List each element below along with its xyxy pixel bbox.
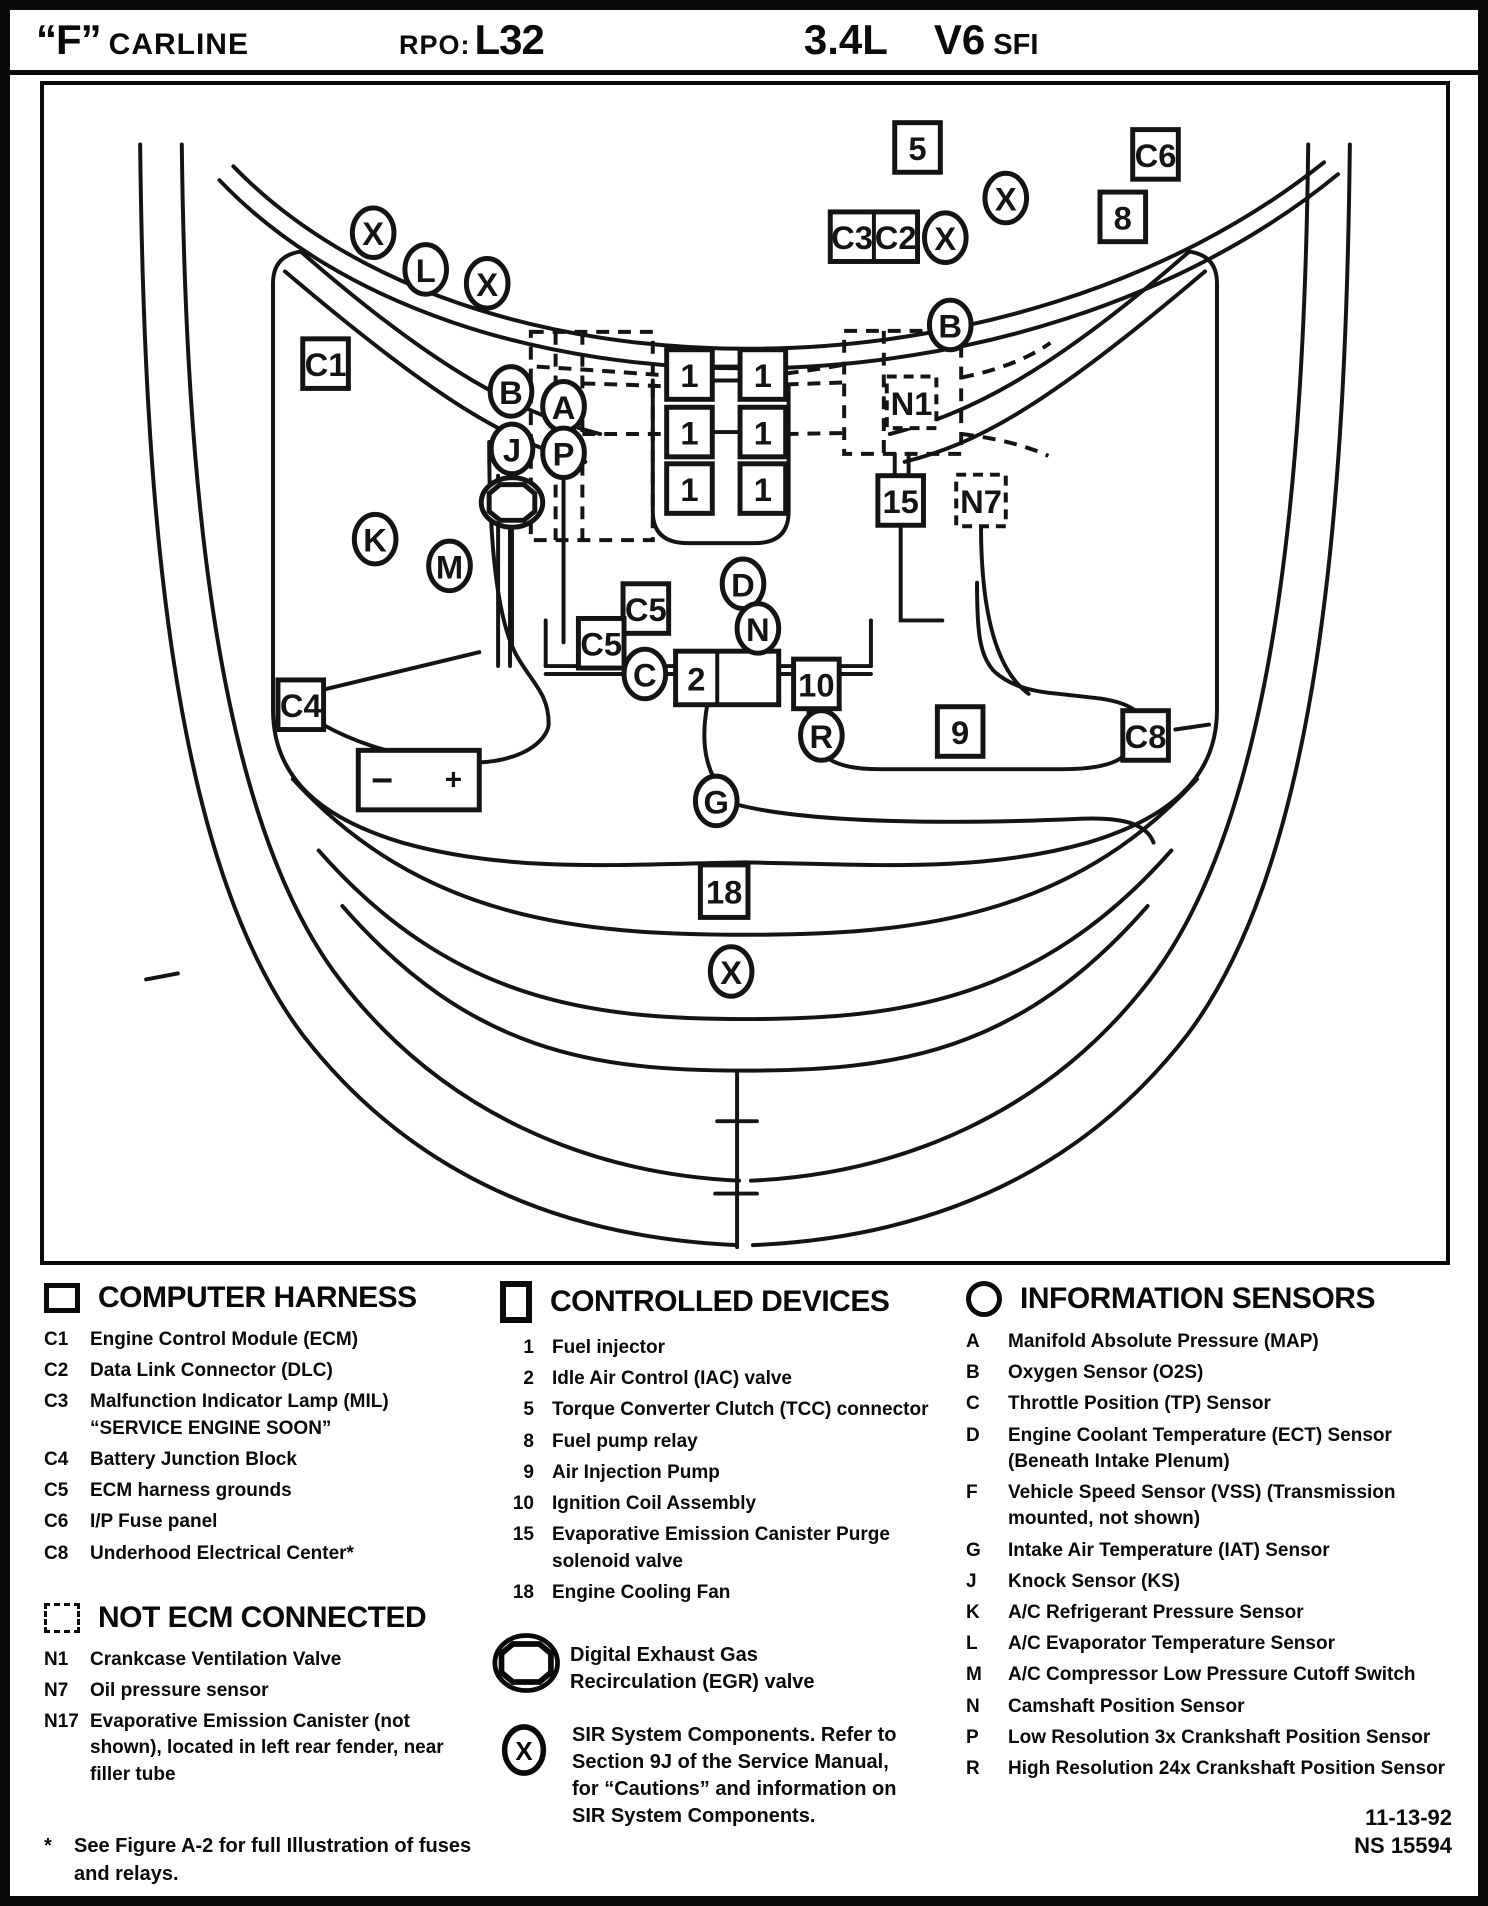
legend-item-key: K — [966, 1600, 1008, 1626]
legend-item-A: AManifold Absolute Pressure (MAP) — [966, 1329, 1462, 1355]
marker-box-1: 1 — [667, 464, 713, 514]
marker-box-C1: C1 — [303, 339, 349, 389]
computer-harness-box-icon — [44, 1283, 80, 1313]
marker-circle-N: N — [737, 604, 779, 654]
legend-item-key: C2 — [44, 1358, 90, 1384]
computer-harness-title: COMPUTER HARNESS — [98, 1281, 417, 1315]
legend-item-text: Crankcase Ventilation Valve — [90, 1647, 500, 1673]
legend-item-G: GIntake Air Temperature (IAT) Sensor — [966, 1538, 1462, 1564]
marker-label: 5 — [908, 130, 926, 167]
carline-title: “F” CARLINE — [36, 16, 249, 64]
battery-plus-terminal: + — [445, 764, 462, 797]
legend-item-1: 1Fuel injector — [500, 1335, 966, 1361]
egr-valve-icon — [492, 1632, 568, 1694]
legend-item-C5: C5ECM harness grounds — [44, 1478, 500, 1504]
marker-circle-L: L — [405, 245, 447, 295]
engine-bay-diagram: 5C68C115C5C5109C8C418111111N1N7C3C22XLXX… — [40, 81, 1450, 1265]
marker-label: K — [363, 522, 387, 559]
legend-item-key: 9 — [500, 1460, 534, 1486]
legend-item-key: C1 — [44, 1327, 90, 1353]
legend-item-text: Battery Junction Block — [90, 1447, 500, 1473]
legend-item-P: PLow Resolution 3x Crankshaft Position S… — [966, 1725, 1462, 1751]
marker-box-C8: C8 — [1123, 711, 1169, 761]
legend-item-key: 2 — [500, 1366, 534, 1392]
legend-item-text: Engine Control Module (ECM) — [90, 1327, 500, 1353]
battery-minus-terminal: − — [371, 759, 393, 801]
legend-item-text: Torque Converter Clutch (TCC) connector — [552, 1397, 966, 1423]
rpo-label: RPO: — [399, 30, 471, 61]
marker-box-1: 1 — [740, 350, 786, 400]
legend-item-text: Evaporative Emission Canister Purge sole… — [552, 1522, 966, 1574]
legend-item-C: CThrottle Position (TP) Sensor — [966, 1391, 1462, 1417]
marker-label: D — [731, 566, 755, 603]
marker-circle-P: P — [543, 428, 585, 478]
marker-box-C6: C6 — [1133, 130, 1179, 180]
marker-circle-B: B — [490, 367, 532, 417]
legend-item-text: A/C Refrigerant Pressure Sensor — [1008, 1600, 1462, 1626]
marker-circle-D: D — [722, 559, 764, 609]
marker-label: C3 — [831, 219, 873, 256]
legend-item-text: Engine Cooling Fan — [552, 1580, 966, 1606]
marker-box-1: 1 — [740, 407, 786, 457]
marker-circle-X: X — [710, 947, 752, 997]
marker-label: C2 — [875, 219, 917, 256]
marker-label: 1 — [754, 415, 772, 452]
legend-item-15: 15Evaporative Emission Canister Purge so… — [500, 1522, 966, 1574]
sir-note-row: X SIR System Components. Refer to Sectio… — [500, 1722, 966, 1830]
marker-circle-B: B — [929, 300, 971, 350]
legend-item-text: High Resolution 24x Crankshaft Position … — [1008, 1756, 1462, 1782]
controlled-devices-list: 1Fuel injector2Idle Air Control (IAC) va… — [500, 1335, 966, 1606]
marker-box-1: 1 — [740, 464, 786, 514]
marker-box-5: 5 — [895, 123, 941, 173]
document-number: NS 15594 — [966, 1832, 1452, 1860]
legend-item-text: Malfunction Indicator Lamp (MIL) “SERVIC… — [90, 1389, 500, 1441]
marker-circle-J: J — [491, 424, 533, 474]
legend-column-computer-harness: COMPUTER HARNESS C1Engine Control Module… — [44, 1281, 500, 1888]
legend-item-C2: C2Data Link Connector (DLC) — [44, 1358, 500, 1384]
legend-item-N17: N17Evaporative Emission Canister (not sh… — [44, 1709, 500, 1788]
marker-dashed-box-N1: N1 — [887, 377, 937, 429]
marker-label: G — [704, 783, 729, 820]
information-sensors-circle-icon — [966, 1281, 1002, 1317]
marker-box-1: 1 — [667, 350, 713, 400]
marker-label: C4 — [280, 687, 323, 724]
carline-label: CARLINE — [109, 28, 249, 62]
legend-item-C8: C8Underhood Electrical Center* — [44, 1541, 500, 1567]
marker-label: B — [938, 307, 962, 344]
legend-item-key: C3 — [44, 1389, 90, 1441]
marker-box-C4: C4 — [278, 680, 324, 730]
legend-item-text: Camshaft Position Sensor — [1008, 1694, 1462, 1720]
marker-label: C8 — [1125, 718, 1167, 755]
legend-item-9: 9Air Injection Pump — [500, 1460, 966, 1486]
legend-item-text: Data Link Connector (DLC) — [90, 1358, 500, 1384]
legend-item-key: C8 — [44, 1541, 90, 1567]
legend-item-text: Throttle Position (TP) Sensor — [1008, 1391, 1462, 1417]
legend-item-F: FVehicle Speed Sensor (VSS) (Transmissio… — [966, 1480, 1462, 1532]
legend-item-key: C6 — [44, 1509, 90, 1535]
revision-block: 11-13-92 NS 15594 — [966, 1804, 1462, 1859]
marker-box-9: 9 — [937, 707, 983, 757]
engine-displacement: 3.4L — [804, 16, 888, 64]
sir-note-text: SIR System Components. Refer to Section … — [572, 1722, 902, 1830]
legend-item-N1: N1Crankcase Ventilation Valve — [44, 1647, 500, 1673]
controlled-devices-heading: CONTROLLED DEVICES — [500, 1281, 966, 1323]
legend-item-10: 10Ignition Coil Assembly — [500, 1491, 966, 1517]
marker-label: 1 — [680, 415, 698, 452]
legend-item-text: Knock Sensor (KS) — [1008, 1569, 1462, 1595]
legend-item-key: L — [966, 1631, 1008, 1657]
footnote: * See Figure A-2 for full Illustration o… — [44, 1832, 500, 1888]
legend-item-key: N17 — [44, 1709, 90, 1788]
engine-cylinders: V6 — [934, 16, 985, 64]
marker-box-8: 8 — [1100, 192, 1146, 242]
marker-label: 10 — [798, 666, 834, 703]
legend-item-key: A — [966, 1329, 1008, 1355]
marker-label: M — [436, 548, 463, 585]
legend-item-L: LA/C Evaporator Temperature Sensor — [966, 1631, 1462, 1657]
marker-label: X — [476, 266, 498, 303]
legend-item-text: Air Injection Pump — [552, 1460, 966, 1486]
marker-circle-X: X — [924, 213, 966, 263]
legend: COMPUTER HARNESS C1Engine Control Module… — [10, 1265, 1478, 1888]
legend-item-2: 2Idle Air Control (IAC) valve — [500, 1366, 966, 1392]
legend-item-key: D — [966, 1423, 1008, 1475]
marker-label: 18 — [706, 874, 742, 911]
legend-item-text: Engine Coolant Temperature (ECT) Sensor … — [1008, 1423, 1462, 1475]
egr-note-text: Digital Exhaust Gas Recirculation (EGR) … — [570, 1642, 870, 1696]
marker-split-box-C3: C3C2 — [830, 212, 917, 262]
legend-item-5: 5Torque Converter Clutch (TCC) connector — [500, 1397, 966, 1423]
marker-circle-R: R — [801, 711, 843, 761]
marker-box-C5: C5 — [623, 584, 669, 634]
marker-label: C5 — [580, 626, 622, 663]
legend-item-R: RHigh Resolution 24x Crankshaft Position… — [966, 1756, 1462, 1782]
not-ecm-title: NOT ECM CONNECTED — [98, 1601, 426, 1635]
legend-item-text: A/C Compressor Low Pressure Cutoff Switc… — [1008, 1662, 1462, 1688]
marker-label: P — [553, 435, 575, 472]
carline-letter: “F” — [36, 16, 101, 64]
legend-item-key: 10 — [500, 1491, 534, 1517]
information-sensors-heading: INFORMATION SENSORS — [966, 1281, 1462, 1317]
legend-column-controlled-devices: CONTROLLED DEVICES 1Fuel injector2Idle A… — [500, 1281, 966, 1888]
marker-label: A — [552, 389, 576, 426]
computer-harness-list: C1Engine Control Module (ECM)C2Data Link… — [44, 1327, 500, 1567]
marker-label: L — [416, 252, 436, 289]
legend-item-key: G — [966, 1538, 1008, 1564]
legend-item-key: C5 — [44, 1478, 90, 1504]
legend-item-C3: C3Malfunction Indicator Lamp (MIL) “SERV… — [44, 1389, 500, 1441]
marker-box-10: 10 — [794, 659, 840, 709]
egr-note-row: Digital Exhaust Gas Recirculation (EGR) … — [492, 1632, 966, 1696]
marker-label: 1 — [680, 471, 698, 508]
legend-item-text: Intake Air Temperature (IAT) Sensor — [1008, 1538, 1462, 1564]
marker-label: X — [362, 215, 384, 252]
legend-item-text: Low Resolution 3x Crankshaft Position Se… — [1008, 1725, 1462, 1751]
legend-item-key: J — [966, 1569, 1008, 1595]
controlled-devices-title: CONTROLLED DEVICES — [550, 1285, 889, 1319]
legend-item-text: ECM harness grounds — [90, 1478, 500, 1504]
footnote-text: See Figure A-2 for full Illustration of … — [74, 1832, 500, 1888]
page-header: “F” CARLINE RPO: L32 3.4L V6 SFI — [10, 10, 1478, 75]
legend-item-C1: C1Engine Control Module (ECM) — [44, 1327, 500, 1353]
marker-label: C6 — [1135, 137, 1177, 174]
legend-item-key: N7 — [44, 1678, 90, 1704]
legend-item-N7: N7Oil pressure sensor — [44, 1678, 500, 1704]
legend-item-key: C4 — [44, 1447, 90, 1473]
marker-box-1: 1 — [667, 407, 713, 457]
information-sensors-title: INFORMATION SENSORS — [1020, 1282, 1375, 1316]
marker-circle-X: X — [466, 259, 508, 309]
legend-item-C6: C6I/P Fuse panel — [44, 1509, 500, 1535]
not-ecm-list: N1Crankcase Ventilation ValveN7Oil press… — [44, 1647, 500, 1788]
marker-label: C5 — [625, 591, 667, 628]
marker-circle-X: X — [352, 208, 394, 258]
legend-item-text: Oil pressure sensor — [90, 1678, 500, 1704]
marker-label: X — [720, 954, 742, 991]
legend-item-key: 5 — [500, 1397, 534, 1423]
marker-label: 1 — [754, 471, 772, 508]
legend-item-C4: C4Battery Junction Block — [44, 1447, 500, 1473]
legend-item-text: Oxygen Sensor (O2S) — [1008, 1360, 1462, 1386]
marker-label: 15 — [882, 483, 918, 520]
legend-item-key: F — [966, 1480, 1008, 1532]
marker-label: N — [746, 611, 770, 648]
legend-item-key: 18 — [500, 1580, 534, 1606]
marker-circle-K: K — [354, 514, 396, 564]
marker-circle-C: C — [624, 649, 666, 699]
marker-label: J — [503, 431, 521, 468]
battery-symbol: −+ — [358, 750, 479, 809]
legend-item-text: Underhood Electrical Center* — [90, 1541, 500, 1567]
sir-icon-letter: X — [515, 1738, 532, 1766]
legend-item-key: R — [966, 1756, 1008, 1782]
marker-dashed-box-N7: N7 — [956, 475, 1006, 527]
egr-valve-symbol — [481, 478, 542, 528]
legend-item-J: JKnock Sensor (KS) — [966, 1569, 1462, 1595]
marker-circle-G: G — [695, 776, 737, 826]
engine-title: 3.4L V6 SFI — [804, 16, 1039, 64]
legend-item-key: N — [966, 1694, 1008, 1720]
marker-label: 8 — [1114, 199, 1132, 236]
legend-item-N: NCamshaft Position Sensor — [966, 1694, 1462, 1720]
legend-item-text: Evaporative Emission Canister (not shown… — [90, 1709, 500, 1788]
rpo-value: L32 — [475, 16, 544, 64]
legend-column-information-sensors: INFORMATION SENSORS AManifold Absolute P… — [966, 1281, 1462, 1888]
legend-item-key: M — [966, 1662, 1008, 1688]
marker-box-15: 15 — [878, 476, 924, 526]
marker-box-C5: C5 — [578, 618, 624, 668]
legend-item-M: MA/C Compressor Low Pressure Cutoff Swit… — [966, 1662, 1462, 1688]
marker-label: X — [995, 181, 1017, 218]
legend-item-text: Manifold Absolute Pressure (MAP) — [1008, 1329, 1462, 1355]
revision-date: 11-13-92 — [966, 1804, 1452, 1832]
rpo-title: RPO: L32 — [399, 16, 544, 64]
computer-harness-heading: COMPUTER HARNESS — [44, 1281, 500, 1315]
sir-x-icon: X — [500, 1722, 548, 1778]
legend-item-key: B — [966, 1360, 1008, 1386]
legend-item-K: KA/C Refrigerant Pressure Sensor — [966, 1600, 1462, 1626]
legend-item-key: 1 — [500, 1335, 534, 1361]
legend-item-text: Fuel injector — [552, 1335, 966, 1361]
legend-item-18: 18Engine Cooling Fan — [500, 1580, 966, 1606]
information-sensors-list: AManifold Absolute Pressure (MAP)BOxygen… — [966, 1329, 1462, 1782]
footnote-asterisk: * — [44, 1832, 74, 1888]
marker-circle-M: M — [429, 541, 471, 591]
marker-label: R — [810, 718, 834, 755]
diagram-markers: 5C68C115C5C5109C8C418111111N1N7C3C22XLXX… — [278, 123, 1178, 997]
marker-circle-X: X — [985, 173, 1027, 223]
marker-label: 1 — [680, 357, 698, 394]
legend-item-text: I/P Fuse panel — [90, 1509, 500, 1535]
marker-circle-A: A — [543, 381, 585, 431]
marker-label: B — [499, 374, 523, 411]
legend-item-text: Vehicle Speed Sensor (VSS) (Transmission… — [1008, 1480, 1462, 1532]
legend-item-B: BOxygen Sensor (O2S) — [966, 1360, 1462, 1386]
controlled-devices-box-icon — [500, 1281, 532, 1323]
marker-label: X — [934, 220, 956, 257]
marker-label: N7 — [960, 483, 1002, 520]
legend-item-key: N1 — [44, 1647, 90, 1673]
marker-split-box-2: 2 — [676, 651, 779, 705]
marker-label: 9 — [951, 714, 969, 751]
legend-item-D: DEngine Coolant Temperature (ECT) Sensor… — [966, 1423, 1462, 1475]
legend-section-not-ecm: NOT ECM CONNECTED N1Crankcase Ventilatio… — [44, 1601, 500, 1788]
marker-label: N1 — [891, 385, 933, 422]
engine-fuel-type: SFI — [993, 29, 1038, 62]
legend-item-8: 8Fuel pump relay — [500, 1429, 966, 1455]
marker-label: 2 — [687, 660, 705, 697]
legend-item-text: A/C Evaporator Temperature Sensor — [1008, 1631, 1462, 1657]
legend-item-key: 8 — [500, 1429, 534, 1455]
legend-item-text: Idle Air Control (IAC) valve — [552, 1366, 966, 1392]
marker-label: 1 — [754, 357, 772, 394]
not-ecm-dashed-box-icon — [44, 1603, 80, 1633]
marker-label: C1 — [305, 346, 347, 383]
marker-box-18: 18 — [700, 865, 748, 918]
legend-item-text: Fuel pump relay — [552, 1429, 966, 1455]
legend-item-text: Ignition Coil Assembly — [552, 1491, 966, 1517]
service-manual-page: “F” CARLINE RPO: L32 3.4L V6 SFI — [0, 0, 1488, 1906]
legend-item-key: 15 — [500, 1522, 534, 1574]
legend-item-key: P — [966, 1725, 1008, 1751]
marker-label: C — [633, 656, 657, 693]
legend-item-key: C — [966, 1391, 1008, 1417]
not-ecm-heading: NOT ECM CONNECTED — [44, 1601, 500, 1635]
